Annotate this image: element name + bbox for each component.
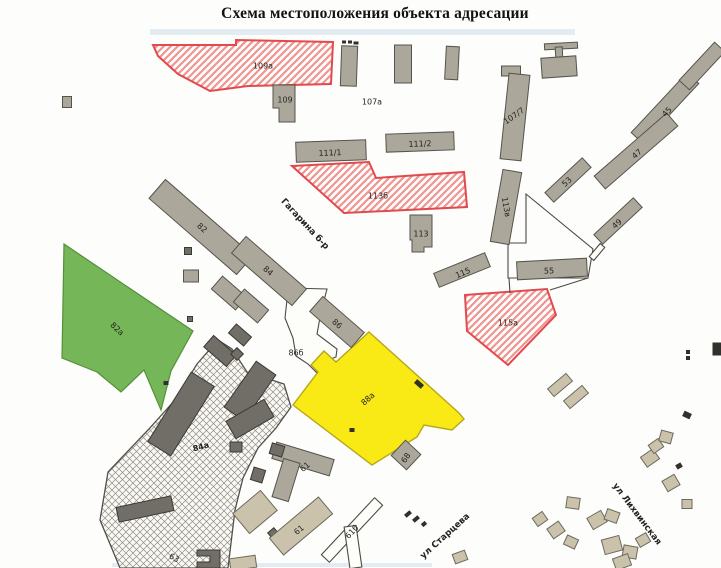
tan-11 — [659, 430, 673, 444]
tan-bottom-edge — [229, 555, 256, 568]
tan-2 — [564, 385, 589, 408]
bld-45-upper — [679, 42, 721, 90]
red-parcel-109a — [153, 40, 333, 91]
tan-4 — [587, 510, 607, 529]
bld-edge-left — [63, 97, 72, 108]
rect — [412, 515, 420, 523]
shed-2 — [184, 270, 199, 282]
rect — [164, 381, 169, 385]
dark-bar-1 — [229, 324, 252, 346]
rect — [686, 350, 690, 354]
tan-15 — [563, 535, 578, 549]
label-55: 55 — [544, 266, 554, 275]
label-111-2: 111/2 — [408, 139, 431, 149]
rect — [404, 510, 412, 518]
parcel-line — [509, 278, 510, 293]
rect — [354, 42, 359, 45]
tan-3 — [566, 497, 580, 510]
rect — [713, 343, 721, 356]
label-115a: 115а — [498, 319, 518, 328]
dark-sq — [230, 442, 242, 452]
rect — [348, 41, 352, 44]
tan-6 — [601, 535, 622, 554]
tan-14 — [612, 554, 631, 568]
label-109: 109 — [277, 96, 292, 105]
green-area-82a — [62, 244, 193, 410]
shed-3 — [188, 317, 193, 322]
tan-17 — [547, 521, 565, 539]
tan-18 — [452, 550, 468, 564]
label-113: 113 — [413, 230, 428, 239]
shed-1 — [185, 248, 192, 255]
bld-small-2 — [395, 45, 412, 83]
bld-61-t-stem — [272, 458, 300, 501]
rect — [682, 411, 692, 420]
rect — [686, 356, 690, 360]
label-109a: 109а — [253, 62, 273, 71]
bld-small-3 — [445, 46, 460, 80]
shed-4 — [250, 467, 265, 483]
label-113b: 113б — [368, 192, 388, 201]
scan-stain-top — [150, 29, 575, 35]
location-map: Схема местоположения объекта адресации 1… — [0, 0, 721, 568]
label-86b: 86б — [288, 349, 303, 358]
rect — [350, 428, 355, 432]
tan-bld-1 — [233, 490, 277, 533]
bld-small-1 — [340, 46, 357, 87]
tan-16 — [532, 511, 548, 526]
tan-13 — [682, 500, 692, 509]
tan-1 — [548, 373, 573, 396]
bld-t-box — [541, 56, 577, 78]
rect — [421, 521, 427, 527]
street-gagarina: Гагарина б-р — [279, 196, 332, 252]
white-thin-bar — [589, 244, 605, 261]
map-title: Схема местоположения объекта адресации — [221, 5, 529, 22]
rect — [675, 462, 683, 469]
label-111-1: 111/1 — [318, 148, 341, 158]
scan-page: Схема местоположения объекта адресации 1… — [0, 0, 721, 568]
tan-12 — [662, 474, 680, 491]
parcel-line — [550, 278, 588, 290]
rect — [342, 41, 346, 44]
label-107a: 107а — [362, 98, 382, 107]
red-parcel-113b — [292, 162, 467, 213]
